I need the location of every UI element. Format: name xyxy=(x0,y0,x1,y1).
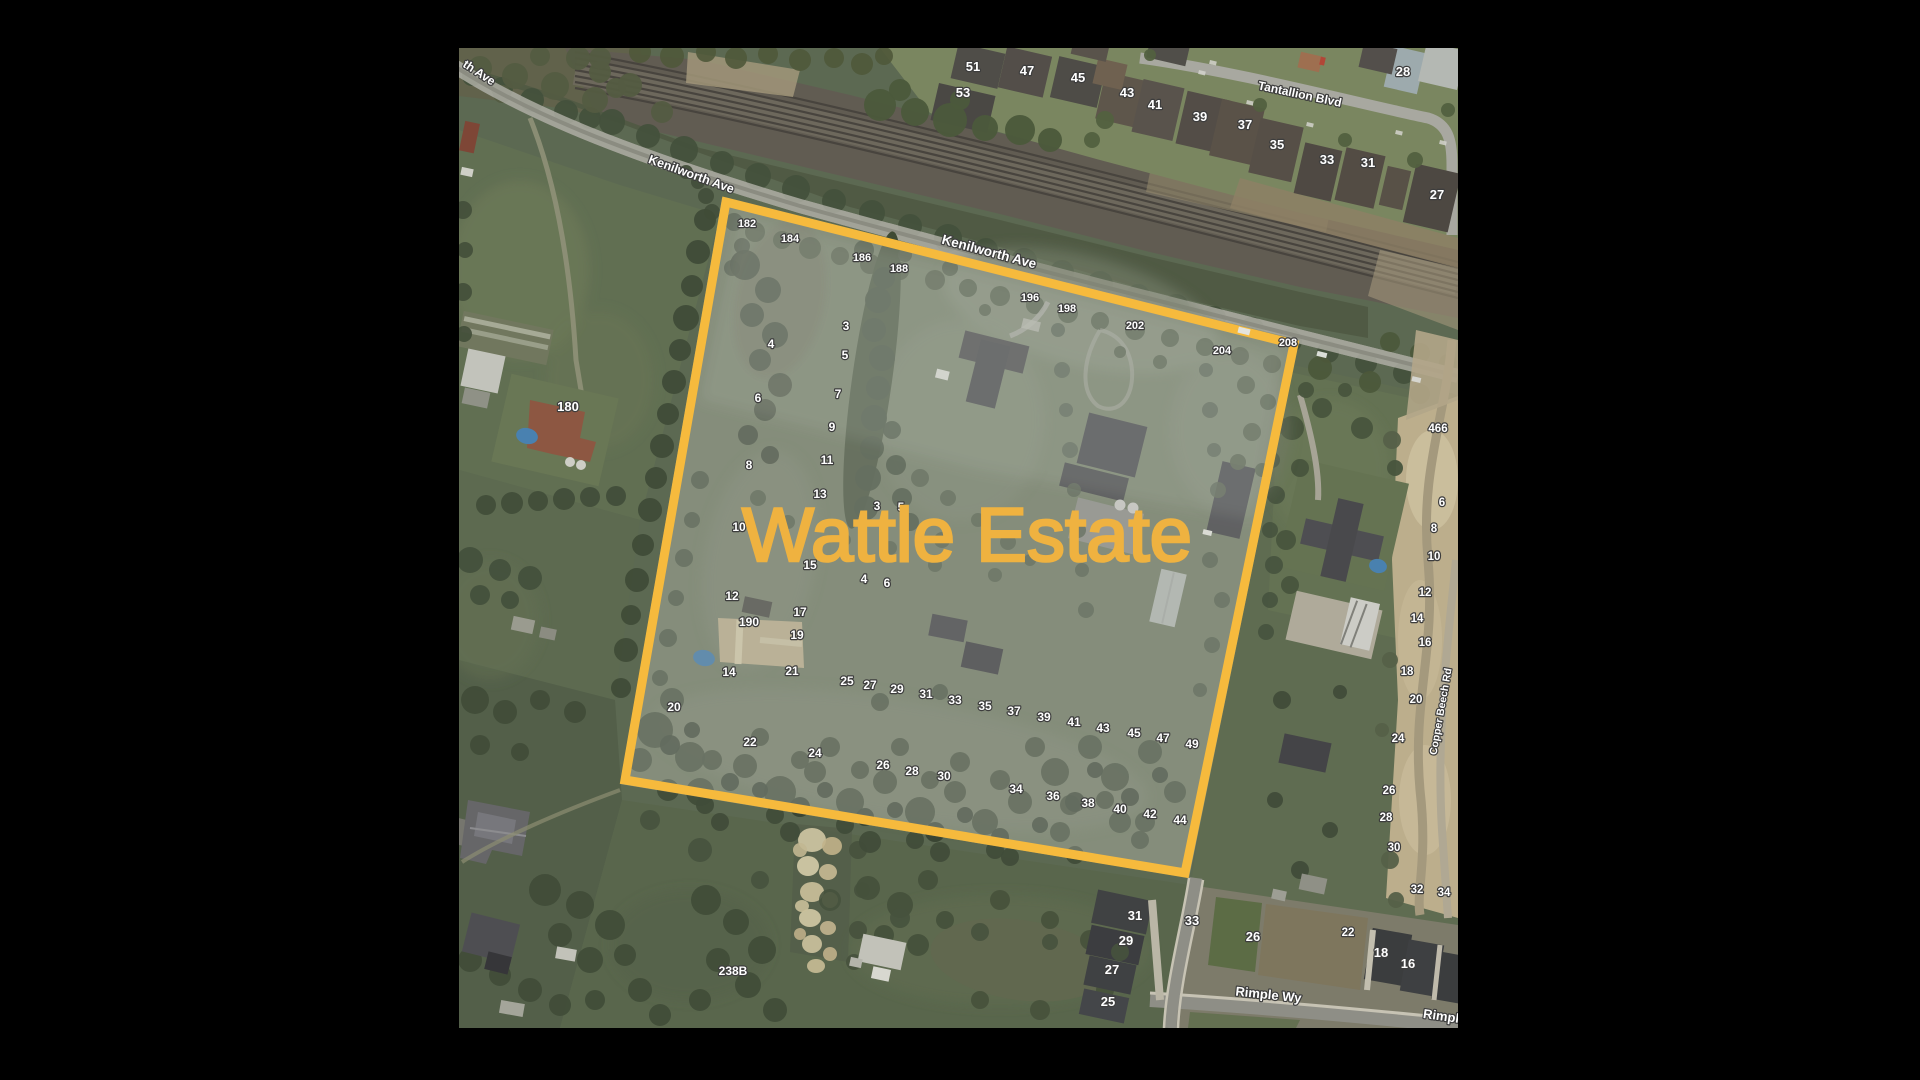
svg-text:41: 41 xyxy=(1067,715,1081,729)
svg-text:204: 204 xyxy=(1213,345,1232,357)
svg-text:35: 35 xyxy=(1270,137,1284,152)
svg-text:41: 41 xyxy=(1148,97,1162,112)
svg-text:28: 28 xyxy=(1396,64,1410,79)
svg-text:38: 38 xyxy=(1081,796,1095,810)
svg-text:25: 25 xyxy=(1101,994,1115,1009)
svg-text:31: 31 xyxy=(1128,908,1142,923)
svg-text:18: 18 xyxy=(1374,945,1388,960)
svg-text:27: 27 xyxy=(863,678,877,692)
svg-text:26: 26 xyxy=(1383,785,1396,797)
svg-text:186: 186 xyxy=(853,252,871,264)
svg-text:33: 33 xyxy=(948,693,962,707)
svg-text:12: 12 xyxy=(1419,587,1432,599)
svg-text:43: 43 xyxy=(1096,721,1110,735)
svg-text:53: 53 xyxy=(956,85,970,100)
svg-text:33: 33 xyxy=(1320,152,1334,167)
svg-text:39: 39 xyxy=(1193,109,1207,124)
svg-text:28: 28 xyxy=(1380,812,1393,824)
svg-text:42: 42 xyxy=(1143,807,1157,821)
svg-text:22: 22 xyxy=(743,735,757,749)
svg-text:196: 196 xyxy=(1021,292,1039,304)
svg-text:180: 180 xyxy=(557,399,579,414)
svg-text:34: 34 xyxy=(1438,887,1451,899)
svg-text:30: 30 xyxy=(1388,842,1401,854)
svg-text:8: 8 xyxy=(746,458,753,472)
svg-text:238B: 238B xyxy=(719,964,748,978)
svg-text:35: 35 xyxy=(978,699,992,713)
svg-text:30: 30 xyxy=(937,769,951,783)
svg-text:43: 43 xyxy=(1120,85,1134,100)
svg-text:208: 208 xyxy=(1279,337,1297,349)
svg-text:4: 4 xyxy=(768,337,775,351)
svg-text:34: 34 xyxy=(1009,782,1023,796)
svg-text:10: 10 xyxy=(1428,551,1441,563)
svg-text:16: 16 xyxy=(1401,956,1415,971)
svg-text:31: 31 xyxy=(1361,155,1375,170)
svg-text:24: 24 xyxy=(808,746,822,760)
svg-text:39: 39 xyxy=(1037,710,1051,724)
svg-text:37: 37 xyxy=(1007,704,1021,718)
svg-text:6: 6 xyxy=(1439,497,1445,509)
svg-text:5: 5 xyxy=(842,348,849,362)
svg-text:11: 11 xyxy=(821,453,834,467)
svg-text:26: 26 xyxy=(1246,929,1260,944)
svg-text:202: 202 xyxy=(1126,320,1144,332)
svg-text:22: 22 xyxy=(1342,927,1355,939)
svg-text:49: 49 xyxy=(1185,737,1199,751)
svg-text:29: 29 xyxy=(1119,933,1133,948)
svg-text:188: 188 xyxy=(890,263,908,275)
svg-text:36: 36 xyxy=(1046,789,1060,803)
svg-text:51: 51 xyxy=(966,59,980,74)
svg-text:20: 20 xyxy=(667,700,681,714)
svg-text:12: 12 xyxy=(725,589,739,603)
svg-text:28: 28 xyxy=(905,764,919,778)
svg-text:20: 20 xyxy=(1410,694,1423,706)
svg-text:44: 44 xyxy=(1173,813,1187,827)
svg-text:45: 45 xyxy=(1127,726,1141,740)
svg-text:8: 8 xyxy=(1431,523,1438,535)
svg-text:3: 3 xyxy=(843,319,850,333)
svg-text:182: 182 xyxy=(738,218,756,230)
svg-text:21: 21 xyxy=(785,664,799,678)
svg-text:33: 33 xyxy=(1185,913,1199,928)
svg-text:17: 17 xyxy=(793,605,807,619)
svg-text:27: 27 xyxy=(1430,187,1444,202)
svg-text:47: 47 xyxy=(1020,63,1034,78)
svg-text:26: 26 xyxy=(876,758,890,772)
svg-text:190: 190 xyxy=(739,615,759,629)
svg-text:40: 40 xyxy=(1113,802,1127,816)
svg-text:32: 32 xyxy=(1411,884,1424,896)
svg-text:7: 7 xyxy=(835,387,842,401)
svg-text:37: 37 xyxy=(1238,117,1252,132)
svg-text:14: 14 xyxy=(1411,613,1424,625)
svg-text:16: 16 xyxy=(1419,637,1432,649)
svg-text:9: 9 xyxy=(829,420,836,434)
svg-text:19: 19 xyxy=(790,628,804,642)
svg-text:18: 18 xyxy=(1401,666,1414,678)
svg-text:184: 184 xyxy=(781,233,800,245)
svg-text:Wattle Estate: Wattle Estate xyxy=(742,493,1192,578)
svg-text:24: 24 xyxy=(1392,733,1405,745)
svg-text:47: 47 xyxy=(1156,731,1170,745)
svg-text:6: 6 xyxy=(884,576,891,590)
svg-text:27: 27 xyxy=(1105,962,1119,977)
svg-text:29: 29 xyxy=(890,682,904,696)
svg-text:31: 31 xyxy=(919,687,933,701)
svg-text:466: 466 xyxy=(1428,423,1447,435)
svg-text:45: 45 xyxy=(1071,70,1085,85)
svg-text:6: 6 xyxy=(755,391,762,405)
svg-text:198: 198 xyxy=(1058,303,1076,315)
svg-text:14: 14 xyxy=(722,665,736,679)
svg-text:25: 25 xyxy=(840,674,854,688)
